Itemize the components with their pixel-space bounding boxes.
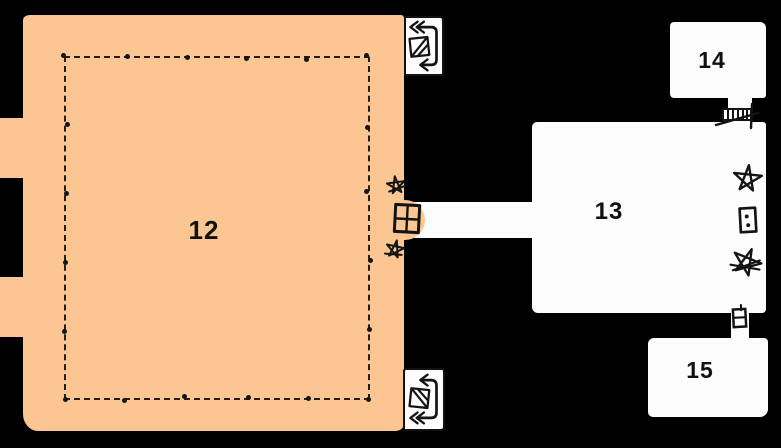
small-door-icon (728, 303, 751, 332)
room-12-label: 12 (174, 215, 234, 246)
pillar-dot (304, 57, 309, 62)
spiral-stair-icon (406, 19, 442, 73)
pillar-dot (63, 260, 68, 265)
pillar-dot (364, 189, 369, 194)
portcullis-door-icon (714, 100, 762, 132)
pillar-dot (366, 397, 371, 402)
pillar-dot (122, 398, 127, 403)
pillar-dot (367, 327, 372, 332)
pillar-dot (306, 396, 311, 401)
star-marker-icon (385, 174, 407, 196)
pillar-dot (244, 56, 249, 61)
room-12-west-exit-north (0, 118, 30, 178)
pentagram-icon (731, 162, 764, 195)
four-pane-door-icon (391, 201, 423, 237)
pillar-dot (61, 53, 66, 58)
pillar-dot (246, 395, 251, 400)
scribbled-pentagram-icon (729, 245, 764, 279)
pillar-dot (64, 191, 69, 196)
room-13-label: 13 (583, 198, 635, 226)
pillar-dot (185, 55, 190, 60)
pillar-dot (65, 122, 70, 127)
pillar-dot (125, 54, 130, 59)
stair-alcove-north (404, 16, 444, 76)
room-12-west-exit-south (0, 277, 30, 337)
pillar-dot (365, 125, 370, 130)
stair-alcove-south (403, 368, 445, 431)
room-15-label: 15 (674, 357, 726, 384)
room-14-label: 14 (686, 47, 738, 74)
pillar-dot (62, 329, 67, 334)
pillar-dot (368, 258, 373, 263)
pillar-dot (364, 53, 369, 58)
marked-door-icon (736, 204, 761, 237)
dungeon-map: 12 (0, 0, 781, 448)
star-marker-icon (384, 238, 406, 260)
room-13 (532, 122, 766, 313)
pillar-dot (182, 394, 187, 399)
spiral-stair-icon (405, 371, 443, 427)
pillar-dot (63, 397, 68, 402)
